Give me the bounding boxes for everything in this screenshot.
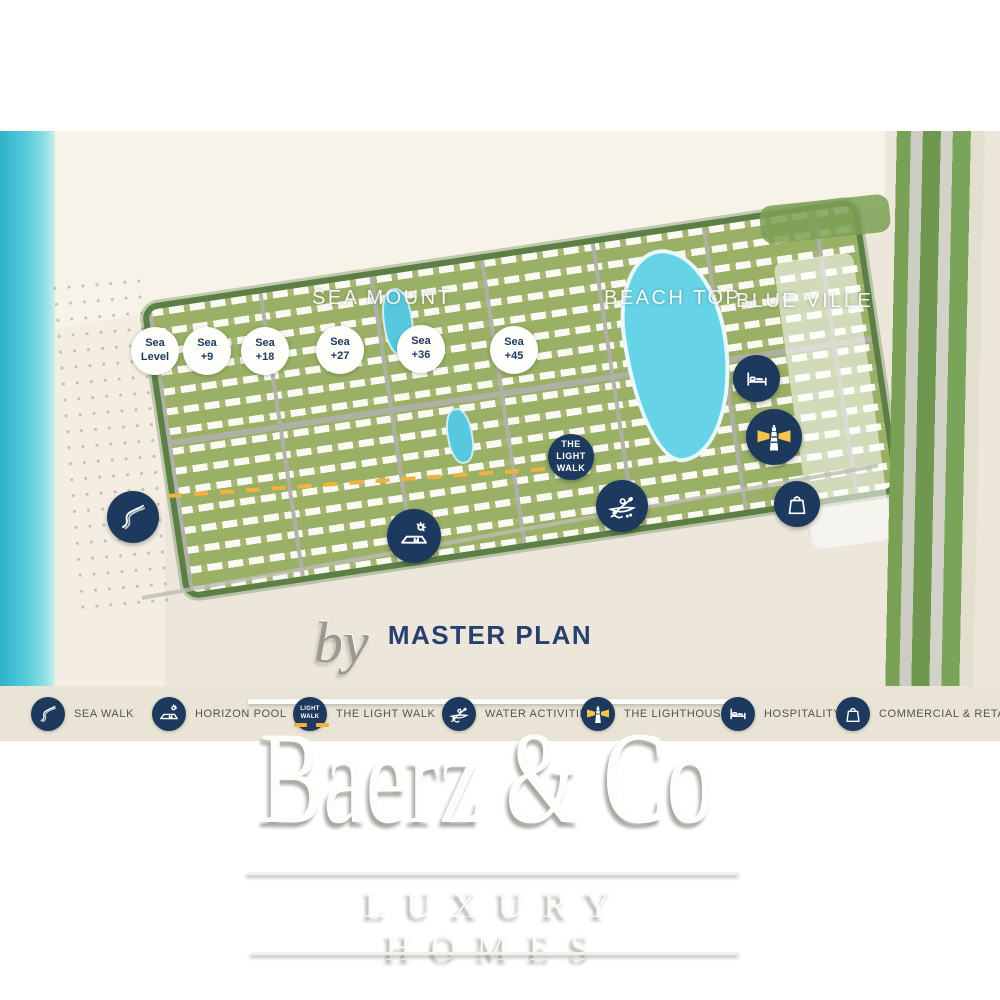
elevation-badge-sea-level: Sea Level — [131, 327, 179, 375]
badge-line: Sea — [197, 337, 217, 351]
sea-walk-marker — [107, 491, 159, 543]
sea-walk-icon — [118, 502, 148, 532]
badge-line: Sea — [504, 336, 524, 350]
badge-line: +18 — [256, 351, 275, 365]
watermark-line-bottom — [252, 952, 740, 955]
commercial-retail-icon — [836, 697, 870, 731]
zone-label-beach-top: BEACH TOP — [604, 287, 741, 310]
badge-line: Level — [141, 351, 169, 365]
badge-line: +36 — [412, 349, 431, 363]
elevation-badge-sea-36: Sea +36 — [397, 325, 445, 373]
watermark-line-top — [248, 872, 740, 875]
master-plan-page: SEA MOUNT BEACH TOP BLUE VILLE Sea Level… — [0, 0, 1000, 1000]
lighthouse-icon — [756, 419, 792, 455]
zone-label-sea-mount: SEA MOUNT — [312, 287, 452, 310]
horizon-pool-marker — [387, 509, 441, 563]
horizon-pool-icon — [398, 520, 430, 552]
brand-watermark: Baerz & Co — [136, 712, 837, 844]
commercial-retail-icon — [783, 490, 811, 518]
badge-line: Sea — [411, 335, 431, 349]
legend-label: SEA WALK — [74, 708, 134, 720]
badge-line: +9 — [201, 351, 214, 365]
legend-label: COMMERCIAL & RETAIL — [879, 708, 1000, 720]
water-activities-icon — [606, 490, 638, 522]
commercial-retail-marker — [774, 481, 820, 527]
hospitality-icon — [743, 365, 771, 393]
badge-line: LIGHT — [556, 451, 586, 463]
badge-line: +27 — [331, 350, 350, 364]
badge-line: Sea — [255, 337, 275, 351]
water-activities-marker — [596, 480, 648, 532]
light-walk-marker: THE LIGHT WALK — [548, 434, 594, 480]
badge-line: THE — [561, 439, 581, 451]
legend-item-commercial-retail: COMMERCIAL & RETAIL — [836, 686, 1000, 741]
sea-water — [0, 131, 58, 686]
badge-line: +45 — [505, 350, 524, 364]
lighthouse-marker — [746, 409, 802, 465]
master-plan-map: SEA MOUNT BEACH TOP BLUE VILLE Sea Level… — [0, 131, 1000, 686]
hospitality-marker — [733, 355, 780, 402]
badge-line: Sea — [145, 337, 165, 351]
legend-item-sea-walk: SEA WALK — [31, 686, 134, 741]
elevation-badge-sea-27: Sea +27 — [316, 326, 364, 374]
brand-tagline: LUXURY HOMES — [245, 884, 750, 970]
map-title: MASTER PLAN — [340, 620, 640, 651]
elevation-badge-sea-45: Sea +45 — [490, 326, 538, 374]
badge-line: Sea — [330, 336, 350, 350]
elevation-badge-sea-18: Sea +18 — [241, 327, 289, 375]
sea-walk-icon — [31, 697, 65, 731]
elevation-badge-sea-9: Sea +9 — [183, 327, 231, 375]
highway-road — [881, 131, 985, 686]
badge-line: WALK — [557, 463, 586, 475]
zone-label-blue-ville: BLUE VILLE — [736, 290, 873, 313]
